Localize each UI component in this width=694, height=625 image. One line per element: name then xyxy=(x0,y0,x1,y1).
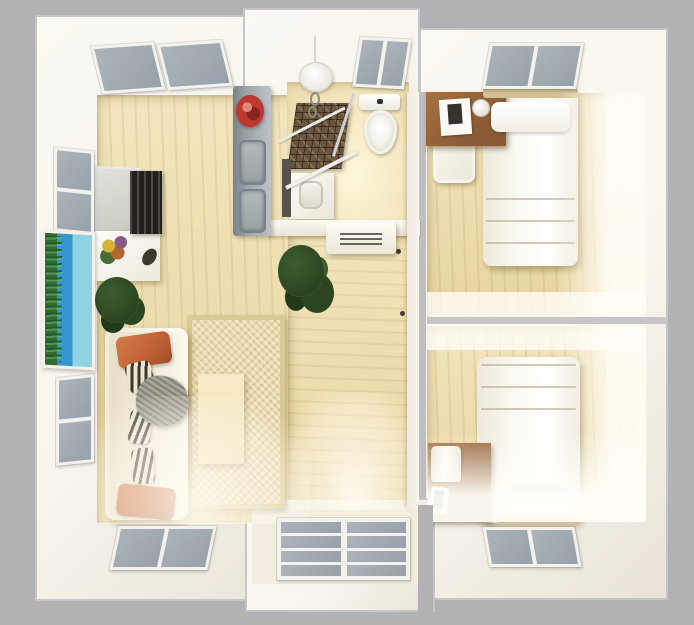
window-pane xyxy=(347,565,407,576)
window-pane xyxy=(281,565,341,576)
hallway-right-wall xyxy=(407,92,419,510)
vent-slats xyxy=(340,231,382,245)
window-pane xyxy=(347,522,407,533)
slab-gap xyxy=(418,505,433,612)
pendant-hook xyxy=(308,106,317,118)
coffee-table xyxy=(198,374,244,464)
floor-plan-render xyxy=(0,0,694,625)
window-pane xyxy=(59,420,91,462)
window-pane xyxy=(59,377,91,419)
sink-basin-2 xyxy=(239,189,266,233)
table-lamp xyxy=(431,446,461,482)
potted-plant-living xyxy=(95,277,139,323)
sink-basin-1 xyxy=(239,140,266,185)
duvet-seams xyxy=(481,364,576,416)
bed-pillow xyxy=(491,102,570,132)
window-pane xyxy=(347,551,407,562)
living-bottom-window xyxy=(109,526,216,570)
laptop-screen xyxy=(447,104,462,125)
bedroom-bottom-window xyxy=(482,527,581,567)
window-pane xyxy=(281,551,341,562)
orange-pillow-bottom xyxy=(115,483,176,521)
window-pane xyxy=(113,529,165,567)
left-wall-window-top xyxy=(54,147,94,235)
window-pane xyxy=(356,40,384,85)
bathroom-window xyxy=(352,37,412,90)
window-pane xyxy=(57,150,91,191)
window-pane xyxy=(57,191,91,232)
hallway-wall-cap xyxy=(419,92,426,512)
left-wall-window-bottom xyxy=(56,374,94,466)
window-pane xyxy=(94,45,161,91)
window-pane xyxy=(347,536,407,547)
duvet-seams xyxy=(486,198,575,264)
bedroom-divider-wall xyxy=(427,317,668,324)
red-flower-bowl xyxy=(236,95,264,127)
bedroom-top-window xyxy=(482,43,584,89)
zebra-cushion-3 xyxy=(131,447,155,484)
door-handle xyxy=(396,249,401,254)
vanity-sink xyxy=(299,181,323,209)
window-pane xyxy=(281,536,341,547)
window-pane xyxy=(381,41,409,86)
bed-pillow xyxy=(510,489,568,517)
window-pane xyxy=(161,43,230,87)
desk-lamp xyxy=(472,99,490,117)
pendant-hook xyxy=(310,92,320,106)
window-pane xyxy=(486,530,533,564)
aquarium-plants xyxy=(46,236,62,363)
toilet-flush-button xyxy=(377,99,383,104)
window-pane xyxy=(161,529,213,567)
bed-headboard xyxy=(483,88,578,98)
window-pane xyxy=(485,46,534,86)
window-pane xyxy=(531,530,578,564)
flower-arrangement xyxy=(99,234,131,264)
skylight-window-1 xyxy=(91,42,166,94)
skylight-window-2 xyxy=(157,40,233,90)
window-pane xyxy=(531,46,580,86)
pendant-lamp xyxy=(299,62,333,92)
tv-screen xyxy=(130,171,162,234)
door-handle xyxy=(400,311,405,316)
french-window xyxy=(277,518,410,580)
potted-plant-hallway xyxy=(278,245,324,297)
window-pane xyxy=(281,522,341,533)
